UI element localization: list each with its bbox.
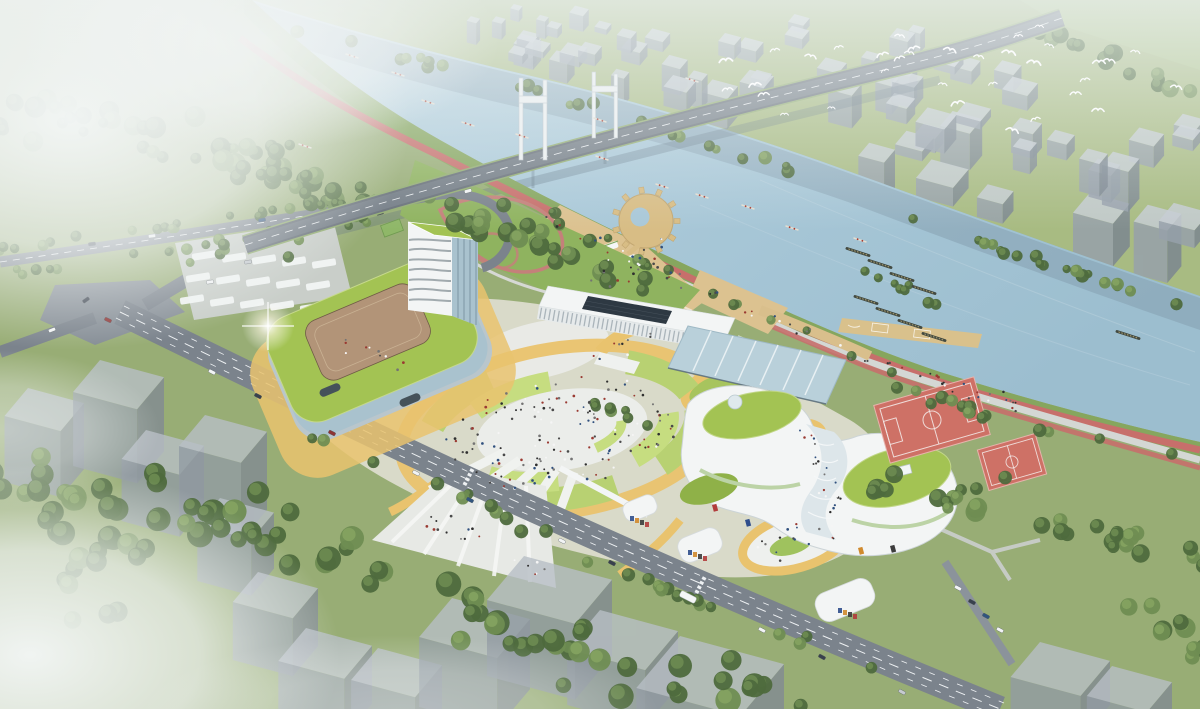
tower-glass-face: [452, 227, 478, 326]
roof-dome: [728, 395, 742, 409]
aerial-rendering: [0, 0, 1200, 709]
tower: [408, 222, 478, 326]
scene-svg: [0, 0, 1200, 709]
